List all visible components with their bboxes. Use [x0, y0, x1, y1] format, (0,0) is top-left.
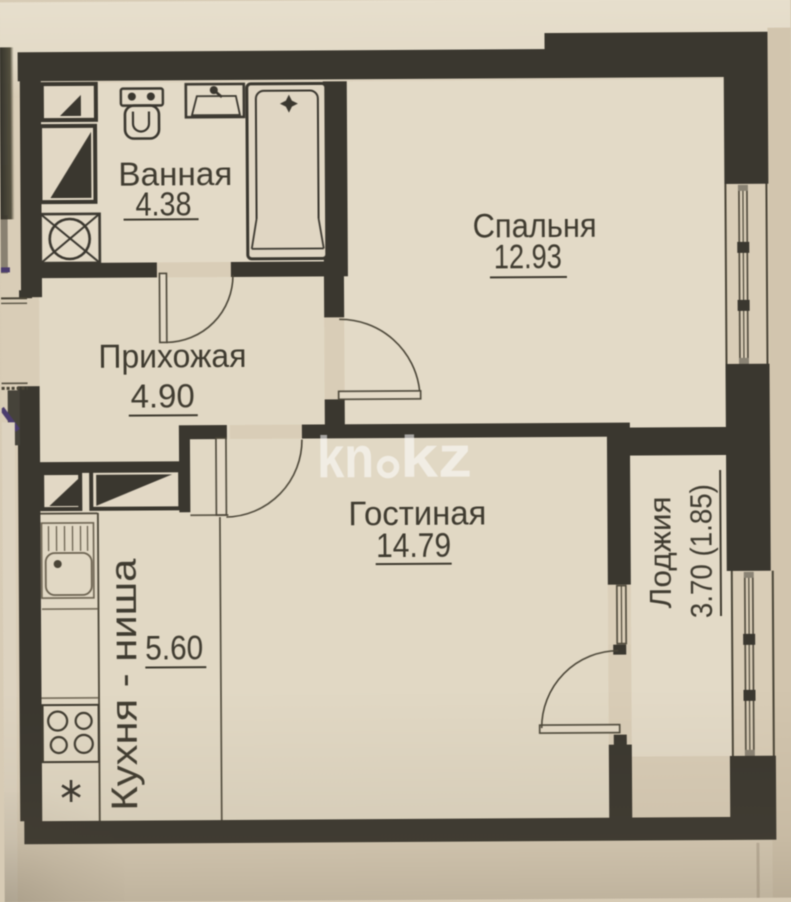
- svg-text:14.79: 14.79: [376, 527, 451, 565]
- svg-text:12.93: 12.93: [494, 238, 562, 276]
- svg-text:3.70 (1.85): 3.70 (1.85): [683, 484, 719, 618]
- svg-text:5.60: 5.60: [145, 629, 203, 667]
- svg-text:Лоджия: Лоджия: [642, 496, 678, 608]
- svg-text:4.90: 4.90: [131, 377, 195, 414]
- svg-text:kn: kn: [317, 425, 374, 490]
- svg-text:4.38: 4.38: [135, 185, 191, 222]
- svg-text:kz: kz: [400, 425, 472, 490]
- svg-text:Прихожая: Прихожая: [98, 337, 246, 375]
